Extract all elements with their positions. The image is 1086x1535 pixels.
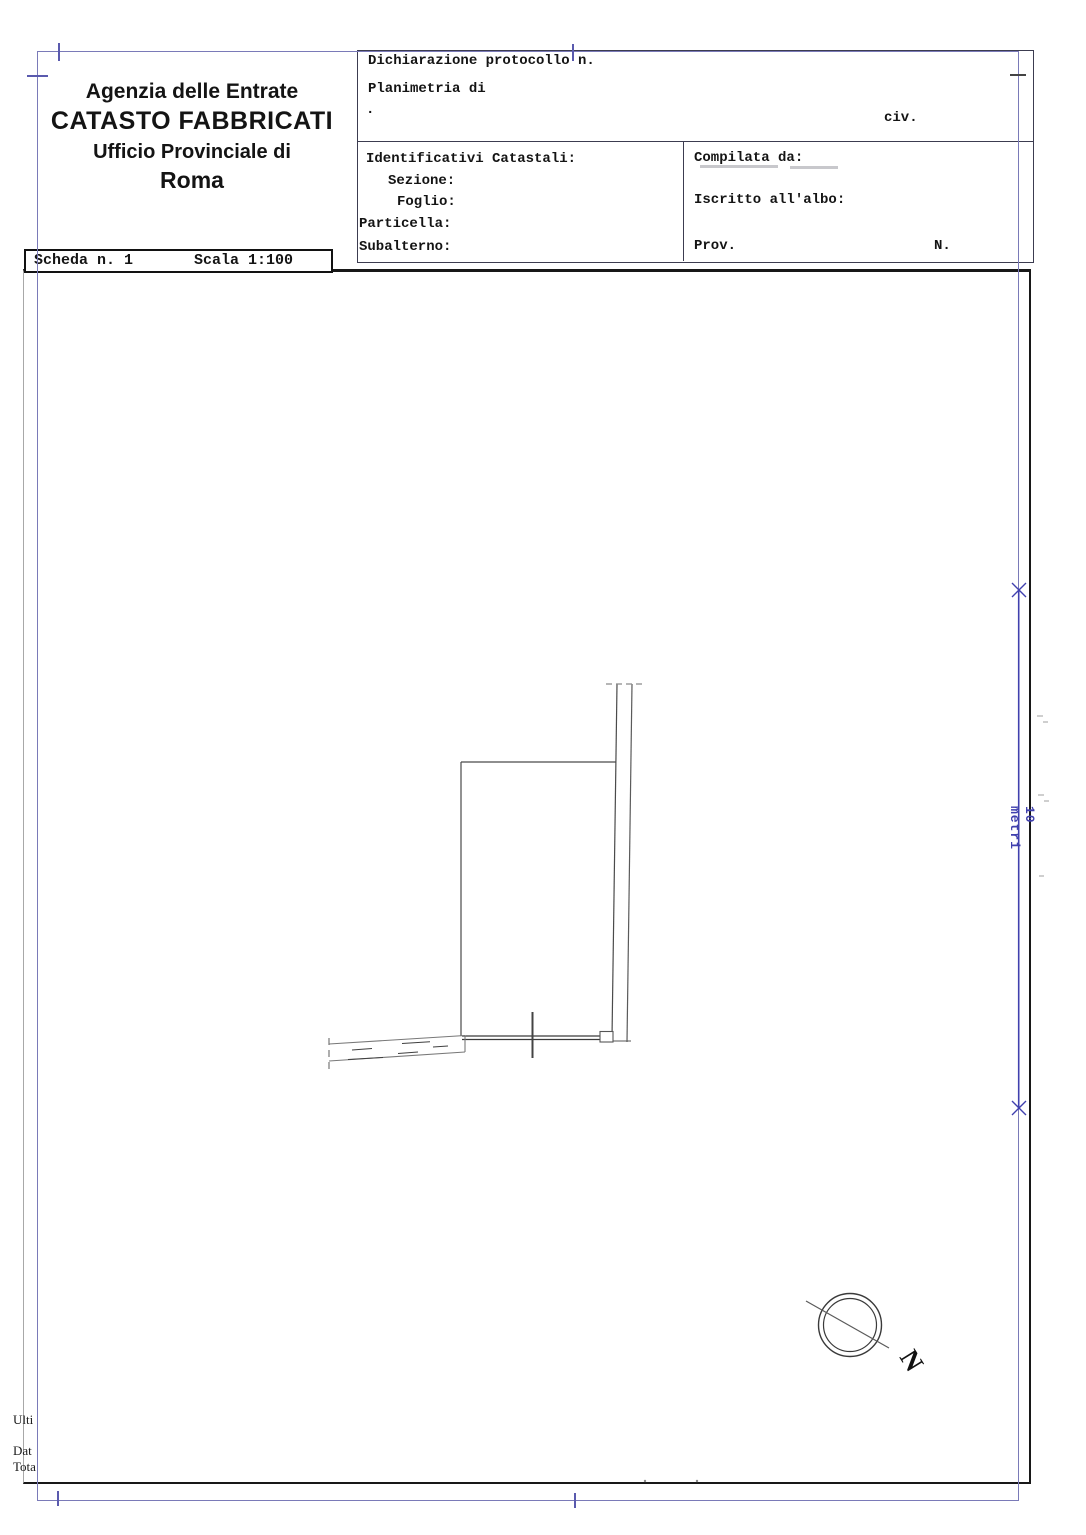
compass-outer-circle <box>819 1294 882 1357</box>
civ-label: civ. <box>884 110 918 126</box>
footer-fragment-3: Tota <box>13 1459 36 1475</box>
tick-top-left <box>58 43 60 61</box>
address-remnant: . <box>366 102 374 118</box>
compass-north-letter: N <box>894 1344 930 1377</box>
city-name: Roma <box>46 167 338 194</box>
letterhead: Agenzia delle Entrate CATASTO FABBRICATI… <box>46 80 338 194</box>
protocol-number-clipped: RM0147662 <box>615 41 755 50</box>
page-border-bottom <box>37 1500 1019 1501</box>
planimetria-label: Planimetria di <box>368 81 486 97</box>
particella-label: Particella: <box>359 216 451 232</box>
plan-ramp-top-edge <box>329 1036 465 1045</box>
page-border-right <box>1018 52 1019 1500</box>
agency-name: Agenzia delle Entrate <box>46 80 338 104</box>
identifiers-title: Identificativi Catastali: <box>366 151 576 167</box>
redacted-text-remnant-1 <box>700 165 778 168</box>
compilata-label: Compilata da: <box>694 150 803 166</box>
foglio-label: Foglio: <box>397 194 456 210</box>
plan-strip-outer-line <box>627 684 632 1042</box>
page-border-top <box>37 51 1019 52</box>
footer-fragment-2: Dat <box>13 1443 32 1459</box>
plan-pillar <box>600 1032 613 1043</box>
protocol-date-clipped: 26/06/2015 <box>797 41 942 50</box>
provincial-office-label: Ufficio Provinciale di <box>46 141 338 164</box>
protocol-label: Dichiarazione protocollo n. <box>368 53 595 69</box>
tick-left <box>27 75 48 77</box>
scale-bar-label: 10 metri <box>1007 806 1037 855</box>
subalterno-label: Subalterno: <box>359 239 451 255</box>
tick-bottom-left <box>57 1491 59 1506</box>
planimetria-page: N Agenzia delle Entrate CATASTO FABBRICA… <box>0 0 1086 1535</box>
scheda-scala-box: Scheda n. 1 Scala 1:100 <box>24 249 333 273</box>
footer-fragment-1: Ulti <box>13 1412 33 1428</box>
scan-dot-2 <box>696 1480 698 1482</box>
scan-noise-dashes <box>1037 716 1049 876</box>
tick-bottom-center <box>574 1493 576 1508</box>
scale-value: Scala 1:100 <box>194 252 293 270</box>
scan-dot-1 <box>644 1480 646 1482</box>
compass-inner-circle <box>824 1299 877 1352</box>
form-horizontal-divider <box>357 141 1033 142</box>
redacted-text-remnant-2 <box>790 166 838 169</box>
catasto-title: CATASTO FABBRICATI <box>46 107 338 136</box>
plan-room-right-wall <box>612 684 617 1038</box>
tick-right <box>1010 74 1026 76</box>
sezione-label: Sezione: <box>388 173 455 189</box>
scheda-number: Scheda n. 1 <box>34 252 133 270</box>
tick-top-center <box>572 44 574 61</box>
plan-ramp-hatch-dashes <box>352 1046 448 1054</box>
iscritto-label: Iscritto all'albo: <box>694 192 845 208</box>
prov-label: Prov. <box>694 238 736 254</box>
n-label: N. <box>934 238 951 254</box>
form-vertical-divider <box>683 141 684 261</box>
page-border-left <box>37 52 38 1500</box>
